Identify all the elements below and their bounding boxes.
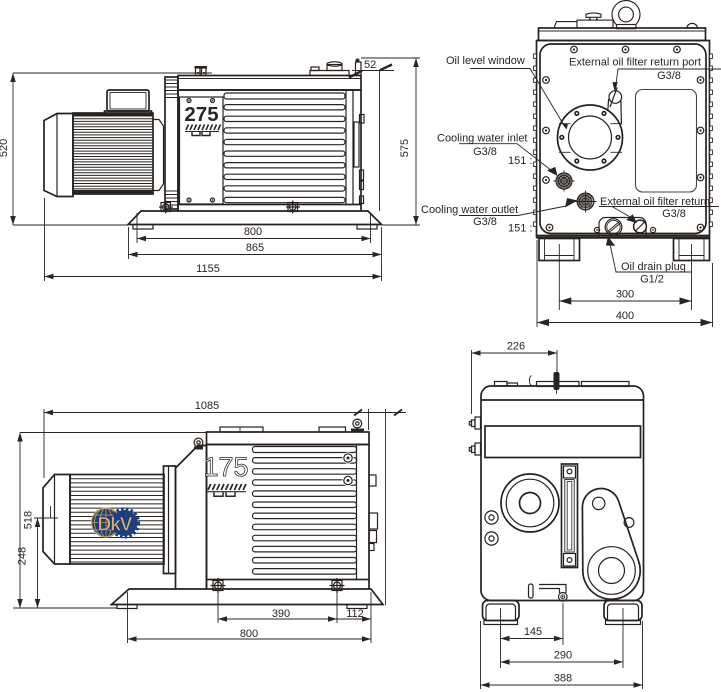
svg-text:226: 226: [507, 341, 525, 353]
svg-text:800: 800: [244, 226, 262, 238]
svg-text:G1/2: G1/2: [640, 274, 664, 286]
svg-text:388: 388: [554, 673, 572, 685]
svg-text:390: 390: [272, 608, 290, 620]
svg-text:290: 290: [554, 650, 572, 662]
svg-text:G3/8: G3/8: [662, 208, 686, 220]
svg-text:275: 275: [184, 103, 218, 126]
svg-text:151 :: 151 :: [508, 155, 532, 167]
svg-text:Oil level window: Oil level window: [446, 55, 525, 67]
svg-text:G3/8: G3/8: [473, 146, 497, 158]
svg-text:145: 145: [524, 626, 542, 638]
svg-text:400: 400: [616, 310, 634, 322]
svg-text:Cooling water inlet: Cooling water inlet: [437, 133, 528, 145]
svg-text:300: 300: [616, 289, 634, 301]
svg-text:Oil drain plug: Oil drain plug: [621, 261, 686, 273]
svg-text:520: 520: [0, 139, 10, 157]
svg-text:G3/8: G3/8: [657, 70, 681, 82]
svg-text:Cooling water outlet: Cooling water outlet: [421, 204, 518, 216]
svg-text:52: 52: [364, 59, 376, 71]
svg-text:151 :: 151 :: [508, 223, 532, 235]
svg-text:DkV: DkV: [98, 515, 133, 536]
svg-text:175: 175: [203, 452, 248, 482]
svg-text:575: 575: [399, 139, 411, 157]
svg-text:865: 865: [246, 242, 264, 254]
svg-text:518: 518: [23, 511, 35, 529]
svg-text:1085: 1085: [195, 400, 219, 412]
svg-text:800: 800: [240, 628, 258, 640]
svg-text:1155: 1155: [196, 263, 220, 275]
svg-text:112: 112: [346, 608, 364, 620]
svg-text:External oil filter return por: External oil filter return port: [569, 57, 701, 69]
svg-text:G3/8: G3/8: [473, 216, 497, 228]
svg-text:248: 248: [17, 547, 29, 565]
